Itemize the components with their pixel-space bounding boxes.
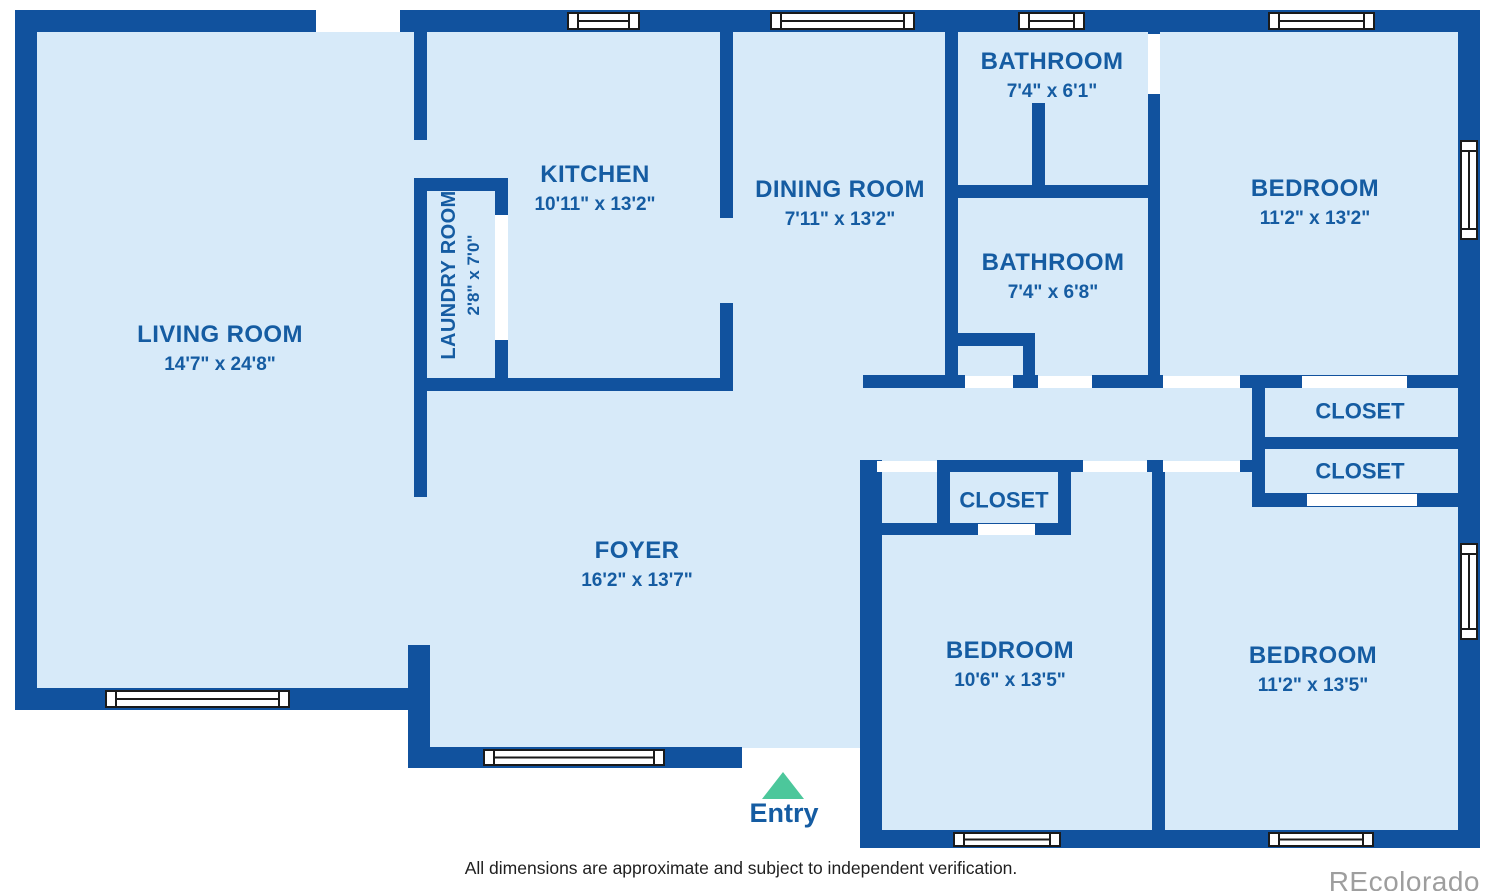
entry-arrow-icon	[762, 772, 804, 799]
label-kitchen: KITCHEN 10'11" x 13'2"	[534, 161, 655, 215]
door-laundry	[495, 215, 508, 340]
wall-hall-top-b	[1013, 375, 1038, 388]
wall-midcloset-bottom	[882, 523, 1071, 535]
room-dims: 11'2" x 13'2"	[1251, 207, 1379, 229]
wall-exterior-right	[1458, 10, 1480, 848]
label-living-room: LIVING ROOM 14'7" x 24'8"	[137, 321, 303, 375]
label-closet-middle: CLOSET	[959, 487, 1048, 512]
label-bedroom-top-right: BEDROOM 11'2" x 13'2"	[1251, 175, 1379, 229]
room-dims: 7'11" x 13'2"	[755, 208, 925, 230]
wall-bathroom1-bottom	[945, 185, 1160, 198]
label-bedroom-bottom-left: BEDROOM 10'6" x 13'5"	[946, 637, 1074, 691]
room-dims: 10'11" x 13'2"	[534, 193, 655, 215]
wall-exterior-left	[15, 10, 37, 710]
wall-hall-bottom-b	[1147, 460, 1163, 472]
wall-exterior-top	[15, 10, 1480, 32]
door-hall-linen-box	[965, 376, 1013, 388]
closet-name: CLOSET	[959, 487, 1048, 512]
door-bathroom2	[1038, 376, 1092, 388]
label-laundry-room: LAUNDRY ROOM 2'8" x 7'0"	[438, 190, 484, 359]
label-bedroom-bottom-right: BEDROOM 11'2" x 13'5"	[1249, 642, 1377, 696]
window-bedroom-tr-right	[1460, 140, 1478, 240]
wall-living-kitchen	[414, 32, 427, 140]
room-dims: 7'4" x 6'1"	[981, 80, 1124, 102]
room-name: BATHROOM	[981, 48, 1124, 76]
room-dims: 11'2" x 13'5"	[1249, 674, 1377, 696]
room-dims: 2'8" x 7'0"	[464, 190, 484, 359]
disclaimer-text: All dimensions are approximate and subje…	[465, 858, 1018, 879]
wall-hall-bottom-c	[1240, 460, 1252, 472]
window-foyer-bottom	[483, 749, 665, 766]
wall-bathroom2-right	[1148, 185, 1160, 388]
wall-kitchen-dining-upper	[720, 32, 733, 218]
label-closet-right-upper: CLOSET	[1315, 398, 1404, 423]
wall-laundry-top	[414, 178, 508, 191]
recolorado-watermark: REcolorado	[1329, 866, 1480, 891]
window-bedroom-bl-bottom	[953, 832, 1061, 847]
wall-hall-top-a	[863, 375, 965, 388]
door-linen-closet	[877, 461, 937, 472]
label-closet-right-lower: CLOSET	[1315, 458, 1404, 483]
label-bathroom-upper: BATHROOM 7'4" x 6'1"	[981, 48, 1124, 102]
room-name: BEDROOM	[1249, 642, 1377, 670]
wall-bedroom-block-left	[860, 460, 882, 848]
wall-laundry-left	[414, 178, 427, 390]
wall-bathroom1-stub	[1032, 103, 1045, 198]
label-dining-room: DINING ROOM 7'11" x 13'2"	[755, 176, 925, 230]
wall-right-closets-divider	[1252, 437, 1458, 449]
room-name: BEDROOM	[946, 637, 1074, 665]
closet-name: CLOSET	[1315, 398, 1404, 423]
label-bathroom-lower: BATHROOM 7'4" x 6'8"	[982, 249, 1125, 303]
label-foyer: FOYER 16'2" x 13'7"	[581, 537, 693, 591]
wall-bedroom-divider	[1152, 472, 1165, 830]
wall-hall-top-c	[1092, 375, 1163, 388]
window-living-bottom	[105, 690, 290, 708]
room-dims: 10'6" x 13'5"	[946, 669, 1074, 691]
door-bedroom-bottom-right	[1163, 461, 1240, 472]
room-name: LIVING ROOM	[137, 321, 303, 349]
room-dims: 7'4" x 6'8"	[982, 281, 1125, 303]
room-dims: 14'7" x 24'8"	[137, 353, 303, 375]
wall-laundry-right-upper	[495, 178, 508, 215]
closet-name: CLOSET	[1315, 458, 1404, 483]
wall-kitchen-dining-stub	[720, 303, 733, 391]
window-bedroom-br-right	[1460, 543, 1478, 640]
door-right-closet-lower	[1307, 494, 1417, 506]
floor-bedroom-block	[871, 688, 1469, 839]
room-name: BEDROOM	[1251, 175, 1379, 203]
floor-plan-canvas: LIVING ROOM 14'7" x 24'8" KITCHEN 10'11"…	[0, 0, 1486, 891]
room-name: KITCHEN	[534, 161, 655, 189]
wall-living-foyer	[414, 391, 427, 497]
door-bathroom1	[1148, 34, 1160, 94]
entry-label: Entry	[749, 798, 818, 829]
door-bedroom-top	[1163, 376, 1240, 388]
window-kitchen-top	[567, 12, 640, 30]
window-dining-top	[770, 12, 915, 30]
door-bedroom-bottom-left	[1083, 461, 1147, 472]
wall-kitchen-bottom	[414, 378, 733, 391]
window-bathroom1-top	[1018, 12, 1085, 30]
room-name: BATHROOM	[982, 249, 1125, 277]
floor-foyer-extension	[419, 688, 860, 750]
room-name: LAUNDRY ROOM	[438, 190, 461, 359]
room-name: DINING ROOM	[755, 176, 925, 204]
opening-top-wall	[316, 10, 400, 32]
room-dims: 16'2" x 13'7"	[581, 569, 693, 591]
door-right-closet-upper	[1302, 376, 1407, 388]
entry-opening	[742, 748, 860, 766]
window-bedroom-top	[1268, 12, 1375, 30]
room-name: FOYER	[581, 537, 693, 565]
window-bedroom-br-bottom	[1268, 832, 1374, 847]
wall-bath2-box-top	[945, 333, 1035, 346]
door-mid-closet	[978, 524, 1035, 535]
